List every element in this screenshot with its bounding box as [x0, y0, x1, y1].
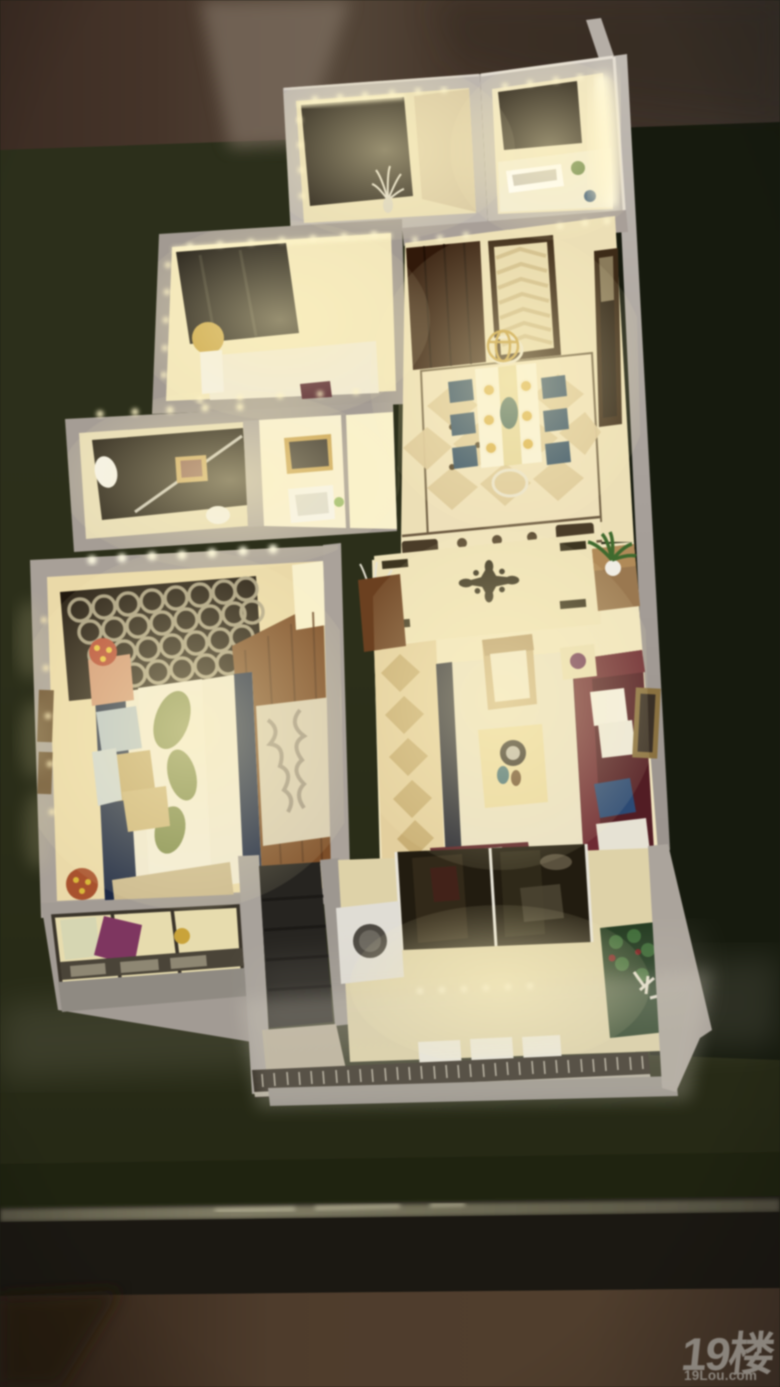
svg-text:19Lou.com: 19Lou.com	[684, 1368, 757, 1383]
